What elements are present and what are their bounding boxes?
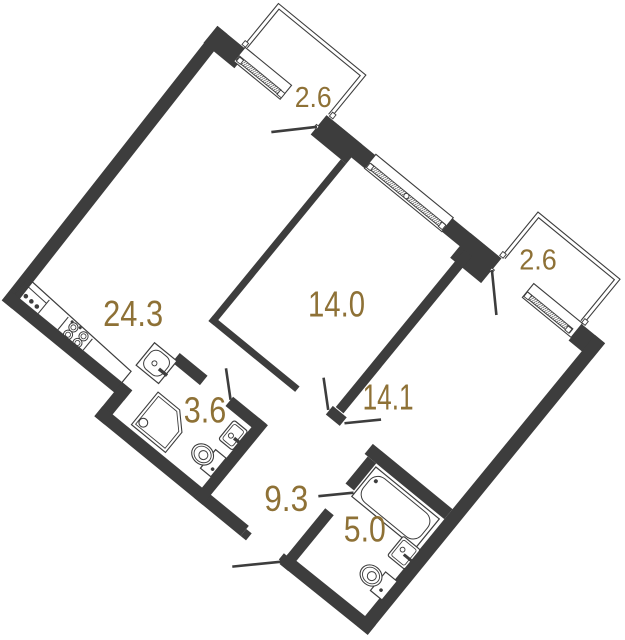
svg-text:2.6: 2.6 [295, 82, 332, 114]
svg-text:9.3: 9.3 [264, 478, 308, 519]
svg-text:14.0: 14.0 [308, 284, 365, 325]
svg-text:14.1: 14.1 [363, 376, 414, 417]
svg-text:3.6: 3.6 [184, 390, 227, 431]
svg-text:24.3: 24.3 [103, 293, 163, 334]
svg-text:2.6: 2.6 [519, 245, 557, 277]
svg-text:5.0: 5.0 [344, 508, 386, 549]
